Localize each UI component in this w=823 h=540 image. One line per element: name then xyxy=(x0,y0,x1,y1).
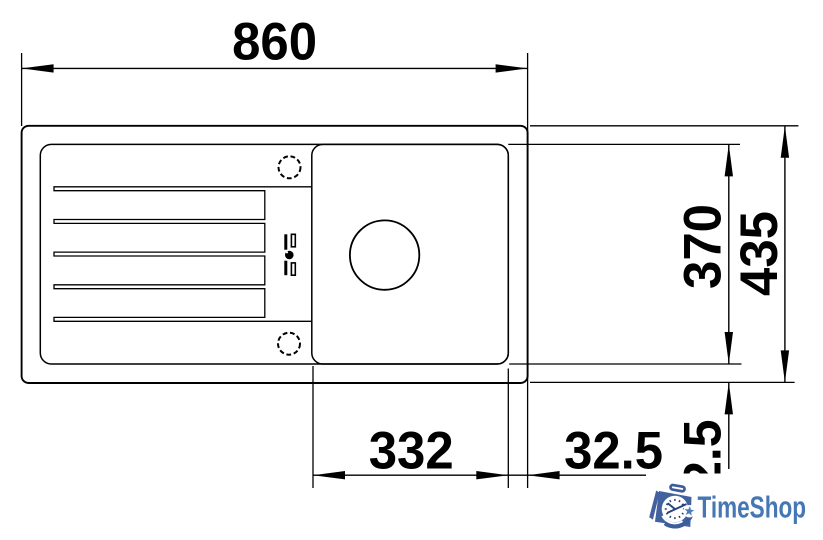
svg-text:860: 860 xyxy=(232,12,317,71)
svg-text:370: 370 xyxy=(674,204,733,289)
svg-text:TimeShop: TimeShop xyxy=(698,491,807,525)
svg-text:332: 332 xyxy=(369,422,454,481)
svg-text:435: 435 xyxy=(730,211,789,296)
svg-text:32.5: 32.5 xyxy=(564,422,663,481)
